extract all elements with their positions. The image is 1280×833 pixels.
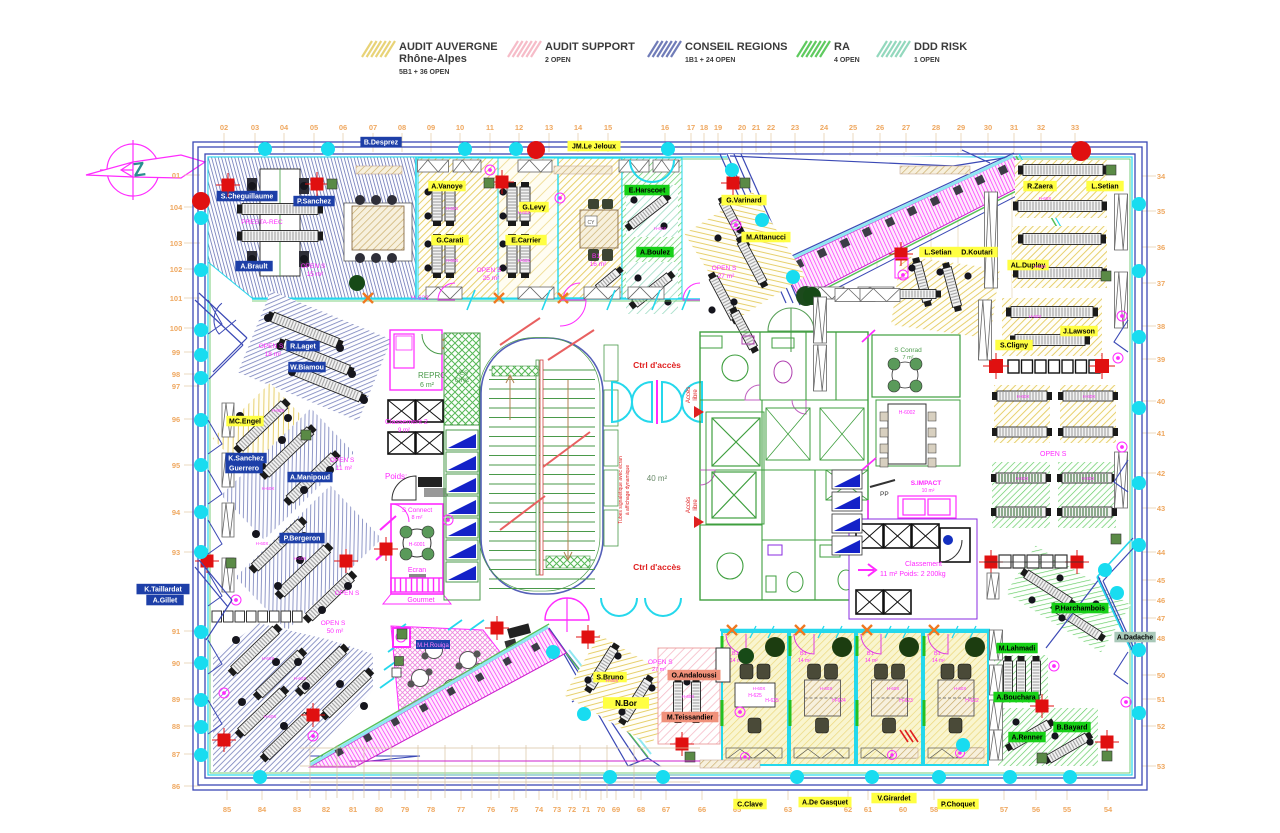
svg-text:VES: VES [456, 371, 468, 377]
svg-text:102: 102 [170, 265, 183, 274]
svg-text:29: 29 [957, 123, 965, 132]
svg-text:H-624: H-624 [832, 698, 846, 704]
svg-text:25: 25 [849, 123, 857, 132]
svg-text:26: 26 [876, 123, 884, 132]
svg-text:14 m²: 14 m² [865, 658, 878, 664]
svg-text:10 m²: 10 m² [922, 488, 935, 494]
svg-text:OPEN S: OPEN S [648, 659, 673, 666]
svg-text:23: 23 [791, 123, 799, 132]
svg-text:17: 17 [687, 123, 695, 132]
svg-text:99: 99 [172, 348, 180, 357]
svg-text:86: 86 [172, 782, 180, 791]
svg-text:à affichage dynamique: à affichage dynamique [625, 465, 631, 515]
svg-text:OPEN S: OPEN S [477, 267, 502, 274]
svg-text:47: 47 [1157, 614, 1165, 623]
svg-text:H-625: H-625 [765, 698, 779, 704]
svg-text:S.Cheguillaume: S.Cheguillaume [221, 194, 274, 201]
svg-text:50 m²: 50 m² [327, 628, 344, 635]
svg-text:OPEN S: OPEN S [712, 265, 737, 272]
svg-text:06: 06 [339, 123, 347, 132]
svg-text:09: 09 [427, 123, 435, 132]
svg-text:libre: libre [693, 389, 699, 401]
svg-text:40: 40 [1157, 397, 1165, 406]
svg-text:72: 72 [568, 805, 576, 814]
svg-text:H-60X: H-60X [820, 686, 833, 691]
svg-text:11 m² Poids: 2 200kg: 11 m² Poids: 2 200kg [880, 571, 946, 578]
svg-text:A.Renner: A.Renner [1011, 735, 1042, 742]
svg-text:OPEN S: OPEN S [1040, 451, 1067, 458]
svg-text:73: 73 [553, 805, 561, 814]
svg-text:H-622: H-622 [965, 698, 979, 704]
svg-text:80: 80 [375, 805, 383, 814]
svg-text:L.Setian: L.Setian [1091, 184, 1118, 191]
svg-text:1 OPEN: 1 OPEN [914, 57, 940, 64]
svg-text:37: 37 [1157, 279, 1165, 288]
svg-text:H-60X: H-60X [518, 258, 531, 263]
svg-text:101: 101 [170, 294, 183, 303]
svg-text:103: 103 [170, 239, 183, 248]
svg-text:H-60X: H-60X [1083, 394, 1096, 399]
svg-text:16 m²: 16 m² [590, 261, 607, 268]
svg-text:A.Brault: A.Brault [240, 264, 268, 271]
svg-text:97: 97 [172, 382, 180, 391]
svg-text:M.Attanucci: M.Attanucci [746, 235, 786, 242]
svg-text:43: 43 [1157, 504, 1165, 513]
svg-text:05: 05 [310, 123, 318, 132]
svg-text:H-6002: H-6002 [899, 410, 916, 416]
svg-text:91: 91 [172, 627, 180, 636]
svg-text:27: 27 [902, 123, 910, 132]
svg-text:L.Setian: L.Setian [924, 250, 951, 257]
svg-text:2 OPEN: 2 OPEN [545, 57, 571, 64]
svg-text:H-60X: H-60X [1039, 196, 1052, 201]
svg-text:42: 42 [1157, 469, 1165, 478]
svg-text:21: 21 [752, 123, 760, 132]
svg-text:83: 83 [293, 805, 301, 814]
svg-text:H-60X: H-60X [753, 686, 766, 691]
svg-text:57: 57 [1000, 805, 1008, 814]
svg-text:M.Lahmadi: M.Lahmadi [999, 646, 1036, 653]
svg-text:C.Clave: C.Clave [737, 802, 763, 809]
svg-text:H-60X: H-60X [1034, 264, 1047, 269]
svg-text:9 m²: 9 m² [398, 428, 410, 434]
svg-text:A.Boulez: A.Boulez [640, 250, 670, 257]
svg-text:82: 82 [322, 805, 330, 814]
svg-text:G.Varinard: G.Varinard [726, 198, 761, 205]
svg-text:Classement 2: Classement 2 [385, 419, 428, 426]
svg-text:REPRO: REPRO [418, 371, 446, 380]
svg-text:33: 33 [1071, 123, 1079, 132]
svg-text:40 m²: 40 m² [647, 474, 668, 483]
svg-text:18 m²: 18 m² [265, 351, 282, 358]
svg-text:44: 44 [1157, 548, 1166, 557]
svg-text:M.Teissandier: M.Teissandier [667, 715, 713, 722]
svg-text:CY: CY [588, 220, 596, 226]
svg-text:OPEN S: OPEN S [301, 263, 326, 270]
svg-text:Ctrl d'accès: Ctrl d'accès [633, 360, 681, 370]
svg-text:15: 15 [604, 123, 612, 132]
svg-text:S.IMPACT: S.IMPACT [911, 480, 942, 487]
svg-text:A.De Gasquet: A.De Gasquet [802, 800, 849, 807]
svg-text:E.Harscoet: E.Harscoet [629, 188, 666, 195]
svg-text:E.Carrier: E.Carrier [511, 238, 541, 245]
svg-text:OPEN S: OPEN S [330, 457, 355, 464]
svg-text:28: 28 [932, 123, 940, 132]
svg-text:94: 94 [172, 508, 181, 517]
svg-text:15 m²: 15 m² [307, 271, 324, 278]
svg-text:69: 69 [612, 805, 620, 814]
svg-text:Tubes signalétique avec écran: Tubes signalétique avec écran [618, 456, 624, 524]
svg-text:11 m²: 11 m² [336, 465, 353, 472]
svg-text:D.Koutari: D.Koutari [961, 250, 993, 257]
svg-text:Guerrero: Guerrero [229, 466, 259, 473]
svg-text:52: 52 [1157, 722, 1165, 731]
svg-text:75: 75 [510, 805, 518, 814]
svg-text:H-60X: H-60X [954, 686, 967, 691]
svg-text:H-60X: H-60X [446, 206, 459, 211]
svg-text:60: 60 [899, 805, 907, 814]
svg-text:87: 87 [172, 750, 180, 759]
svg-text:89: 89 [172, 695, 180, 704]
svg-text:P.Sanchez: P.Sanchez [297, 199, 332, 206]
svg-text:H-60X: H-60X [606, 678, 619, 683]
svg-text:P.Bergeron: P.Bergeron [284, 536, 321, 543]
svg-text:H-60X: H-60X [262, 486, 275, 491]
svg-text:H-623: H-623 [899, 698, 913, 704]
svg-text:G.Carati: G.Carati [436, 238, 463, 245]
svg-text:14 m²: 14 m² [932, 658, 945, 664]
svg-text:03: 03 [251, 123, 259, 132]
svg-text:63: 63 [784, 805, 792, 814]
svg-text:8 m²: 8 m² [412, 515, 423, 521]
svg-text:08: 08 [398, 123, 406, 132]
svg-text:04: 04 [280, 123, 289, 132]
svg-text:5B1 + 36 OPEN: 5B1 + 36 OPEN [399, 69, 449, 76]
svg-text:R.Zaera: R.Zaera [1027, 184, 1053, 191]
svg-text:27 m²: 27 m² [652, 667, 666, 673]
svg-text:4 OPEN: 4 OPEN [834, 57, 860, 64]
svg-text:PRESTA-REC: PRESTA-REC [241, 219, 283, 226]
svg-text:M.H.Rouiga: M.H.Rouiga [417, 643, 449, 649]
svg-text:1B1 + 24 OPEN: 1B1 + 24 OPEN [685, 57, 735, 64]
svg-text:S.Cligny: S.Cligny [1000, 343, 1028, 350]
svg-text:67: 67 [662, 805, 670, 814]
svg-text:88: 88 [172, 722, 180, 731]
svg-text:H-60X: H-60X [256, 541, 269, 546]
svg-text:PP: PP [880, 491, 889, 498]
svg-text:14: 14 [574, 123, 583, 132]
svg-text:AUDIT AUVERGNE: AUDIT AUVERGNE [399, 41, 498, 53]
svg-text:07: 07 [369, 123, 377, 132]
svg-text:58: 58 [930, 805, 938, 814]
svg-text:DDD RISK: DDD RISK [914, 41, 967, 53]
svg-text:S Conrad: S Conrad [894, 347, 922, 354]
svg-text:22: 22 [767, 123, 775, 132]
svg-text:H-60X: H-60X [264, 714, 277, 719]
svg-text:H-60X: H-60X [1082, 476, 1095, 481]
svg-text:11: 11 [486, 123, 494, 132]
svg-text:77: 77 [457, 805, 465, 814]
svg-text:Classement: Classement [905, 561, 942, 568]
svg-text:A.Dadache: A.Dadache [1117, 635, 1153, 642]
svg-text:35: 35 [1157, 207, 1165, 216]
svg-text:71: 71 [582, 805, 590, 814]
svg-text:A.Manipoud: A.Manipoud [290, 475, 330, 482]
svg-text:38: 38 [1157, 322, 1165, 331]
svg-text:55: 55 [1063, 805, 1071, 814]
svg-text:30: 30 [984, 123, 992, 132]
svg-text:CONSEIL REGIONS: CONSEIL REGIONS [685, 41, 787, 53]
svg-text:39: 39 [1157, 355, 1165, 364]
svg-text:34: 34 [1157, 172, 1166, 181]
svg-text:P.Choquet: P.Choquet [941, 802, 976, 809]
svg-text:104: 104 [170, 203, 183, 212]
svg-text:90: 90 [172, 659, 180, 668]
svg-text:CIRC: CIRC [455, 378, 470, 384]
svg-text:51: 51 [1157, 695, 1165, 704]
svg-text:31: 31 [1010, 123, 1018, 132]
svg-text:02: 02 [220, 123, 228, 132]
svg-text:48: 48 [1157, 634, 1165, 643]
svg-text:K.Taillardat: K.Taillardat [144, 587, 182, 594]
svg-text:R.Laget: R.Laget [290, 344, 316, 351]
svg-text:H-60X: H-60X [654, 226, 667, 231]
svg-text:20: 20 [738, 123, 746, 132]
svg-text:45: 45 [1157, 576, 1165, 585]
svg-text:81: 81 [349, 805, 357, 814]
svg-text:H-625: H-625 [748, 693, 762, 699]
svg-text:46: 46 [1157, 596, 1165, 605]
svg-text:56: 56 [1032, 805, 1040, 814]
svg-text:76: 76 [487, 805, 495, 814]
svg-text:78: 78 [427, 805, 435, 814]
svg-text:B1: B1 [592, 253, 600, 260]
svg-text:H-60X: H-60X [1016, 476, 1029, 481]
svg-text:36: 36 [1157, 243, 1165, 252]
svg-text:H-60X: H-60X [1017, 394, 1030, 399]
svg-text:H-60X: H-60X [1029, 314, 1042, 319]
svg-text:MC.Engel: MC.Engel [229, 419, 261, 426]
svg-text:A.Gillet: A.Gillet [153, 598, 178, 605]
svg-text:16: 16 [661, 123, 669, 132]
svg-text:54: 54 [1104, 805, 1113, 814]
svg-text:74: 74 [535, 805, 544, 814]
svg-text:93: 93 [172, 548, 180, 557]
svg-text:95: 95 [172, 461, 180, 470]
svg-text:B.Desprez: B.Desprez [364, 140, 399, 147]
svg-text:100: 100 [170, 324, 183, 333]
svg-text:OPEN S: OPEN S [259, 343, 284, 350]
svg-text:H-60X: H-60X [262, 656, 275, 661]
svg-text:JM.Le Jeloux: JM.Le Jeloux [572, 144, 616, 151]
svg-text:AUDIT SUPPORT: AUDIT SUPPORT [545, 41, 635, 53]
svg-text:K.Sanchez: K.Sanchez [228, 456, 264, 463]
svg-text:H-60X: H-60X [518, 210, 531, 215]
svg-text:Gourmet: Gourmet [407, 597, 434, 604]
svg-text:24: 24 [820, 123, 829, 132]
svg-text:V.Girardet: V.Girardet [877, 796, 911, 803]
svg-text:53: 53 [1157, 762, 1165, 771]
svg-text:Accès: Accès [686, 497, 692, 513]
svg-text:32: 32 [1037, 123, 1045, 132]
svg-text:H-60X: H-60X [682, 694, 695, 699]
svg-text:Rhône-Alpes: Rhône-Alpes [399, 53, 467, 65]
svg-text:P.Harchambois: P.Harchambois [1055, 606, 1105, 613]
svg-text:H-6001: H-6001 [409, 542, 426, 548]
svg-text:01: 01 [172, 171, 180, 180]
svg-text:41: 41 [1157, 429, 1165, 438]
svg-text:Accès: Accès [686, 387, 692, 403]
svg-text:6 m²: 6 m² [420, 382, 435, 389]
svg-text:OPEN S: OPEN S [321, 620, 346, 627]
svg-text:19: 19 [714, 123, 722, 132]
svg-text:25 m²: 25 m² [483, 275, 500, 282]
svg-text:O.Andaloussi: O.Andaloussi [671, 673, 716, 680]
svg-text:H-60X: H-60X [887, 686, 900, 691]
svg-text:H-60X: H-60X [294, 676, 307, 681]
svg-text:13: 13 [545, 123, 553, 132]
svg-text:10: 10 [456, 123, 464, 132]
svg-text:66: 66 [698, 805, 706, 814]
svg-text:18: 18 [700, 123, 708, 132]
svg-text:12: 12 [515, 123, 523, 132]
svg-text:OPEN S: OPEN S [335, 590, 360, 597]
svg-text:B.Bayard: B.Bayard [1057, 725, 1088, 732]
svg-text:H-60X: H-60X [272, 408, 285, 413]
svg-text:68: 68 [637, 805, 645, 814]
svg-text:J.Lawson: J.Lawson [1063, 329, 1095, 336]
svg-text:Ecran: Ecran [408, 567, 426, 574]
svg-text:W.Biamou: W.Biamou [290, 365, 324, 372]
svg-text:79: 79 [401, 805, 409, 814]
svg-text:H-623: H-623 [411, 295, 429, 302]
svg-text:96: 96 [172, 415, 180, 424]
svg-text:14 m²: 14 m² [798, 658, 811, 664]
svg-text:50: 50 [1157, 671, 1165, 680]
svg-text:85: 85 [223, 805, 231, 814]
svg-text:A.Vanoye: A.Vanoye [431, 184, 463, 191]
svg-text:A.Bouchara: A.Bouchara [996, 695, 1035, 702]
svg-text:H-60X: H-60X [294, 556, 307, 561]
svg-text:27 m²: 27 m² [718, 273, 735, 280]
svg-text:84: 84 [258, 805, 267, 814]
svg-text:Ctrl d'accès: Ctrl d'accès [633, 562, 681, 572]
svg-text:H-60X: H-60X [446, 258, 459, 263]
svg-text:RA: RA [834, 41, 850, 53]
svg-text:61: 61 [864, 805, 872, 814]
svg-text:N.Bor: N.Bor [615, 699, 637, 708]
svg-text:70: 70 [597, 805, 605, 814]
svg-text:libre: libre [693, 499, 699, 511]
svg-text:98: 98 [172, 370, 180, 379]
